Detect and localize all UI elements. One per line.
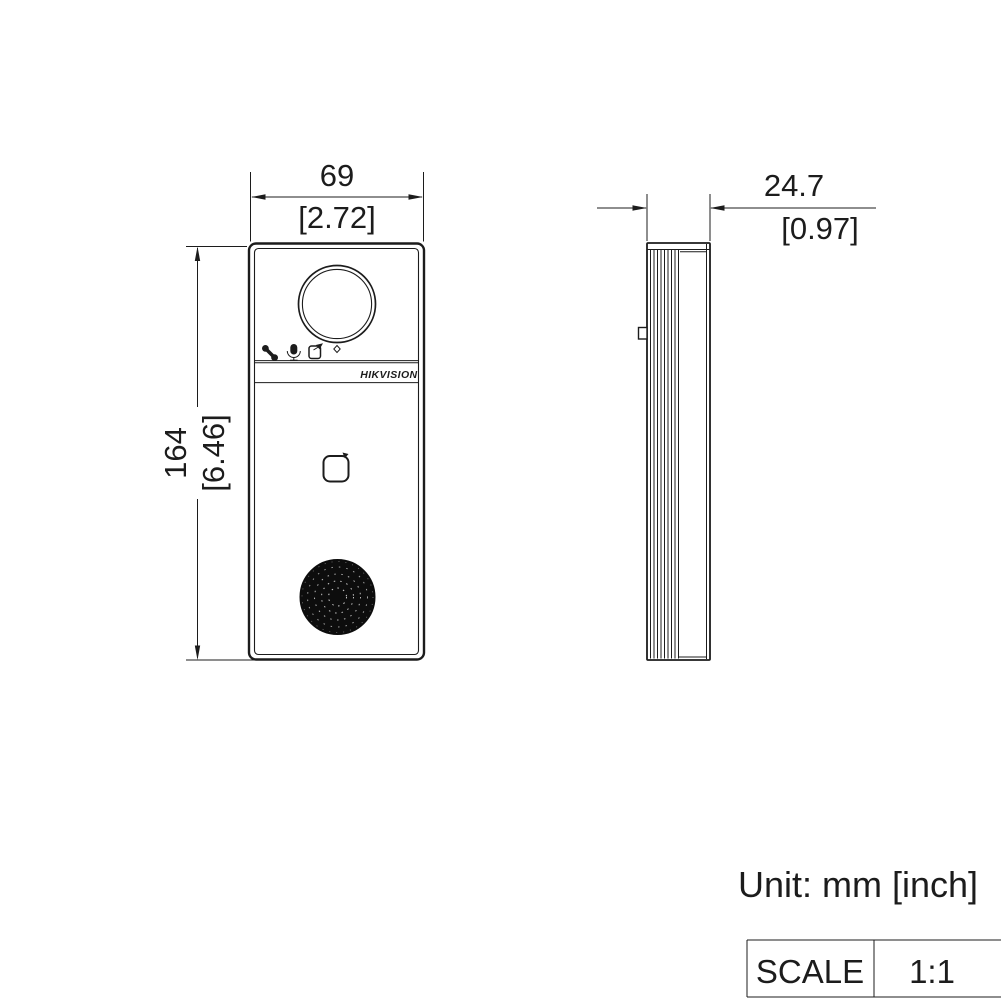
depth-arrow-right [710,205,725,210]
width-value-mm: 69 [320,158,354,193]
depth-value-mm: 24.7 [764,168,824,203]
scale-label: SCALE [756,953,864,990]
dimension-width: 69 [2.72] [251,158,424,242]
width-arrow-right [409,194,424,199]
height-value-inch: [6.46] [196,414,231,492]
speaker-grille [300,560,375,635]
side-view [639,243,711,660]
drawing-sheet: HIKVISION [0,0,1001,999]
door-release-icon [309,343,323,358]
dimension-drawing-canvas: HIKVISION [0,0,1001,999]
width-arrow-left [251,194,266,199]
unit-note: Unit: mm [inch] [738,864,978,905]
call-button [324,456,349,482]
scale-table: SCALE 1:1 [747,940,1001,997]
height-value-mm: 164 [158,427,193,479]
dimension-height: 164 [6.46] [158,247,256,661]
height-arrow-bottom [195,646,200,661]
height-arrow-top [195,247,200,262]
depth-arrow-left [633,205,648,210]
dimension-depth: 24.7 [0.97] [597,168,876,246]
front-view: HIKVISION [249,244,424,660]
scale-value: 1:1 [909,953,955,990]
width-value-inch: [2.72] [298,200,376,235]
side-setscrew [639,328,648,340]
depth-value-inch: [0.97] [781,211,859,246]
camera-lens-inner [302,269,371,338]
brand-logo: HIKVISION [360,369,417,381]
